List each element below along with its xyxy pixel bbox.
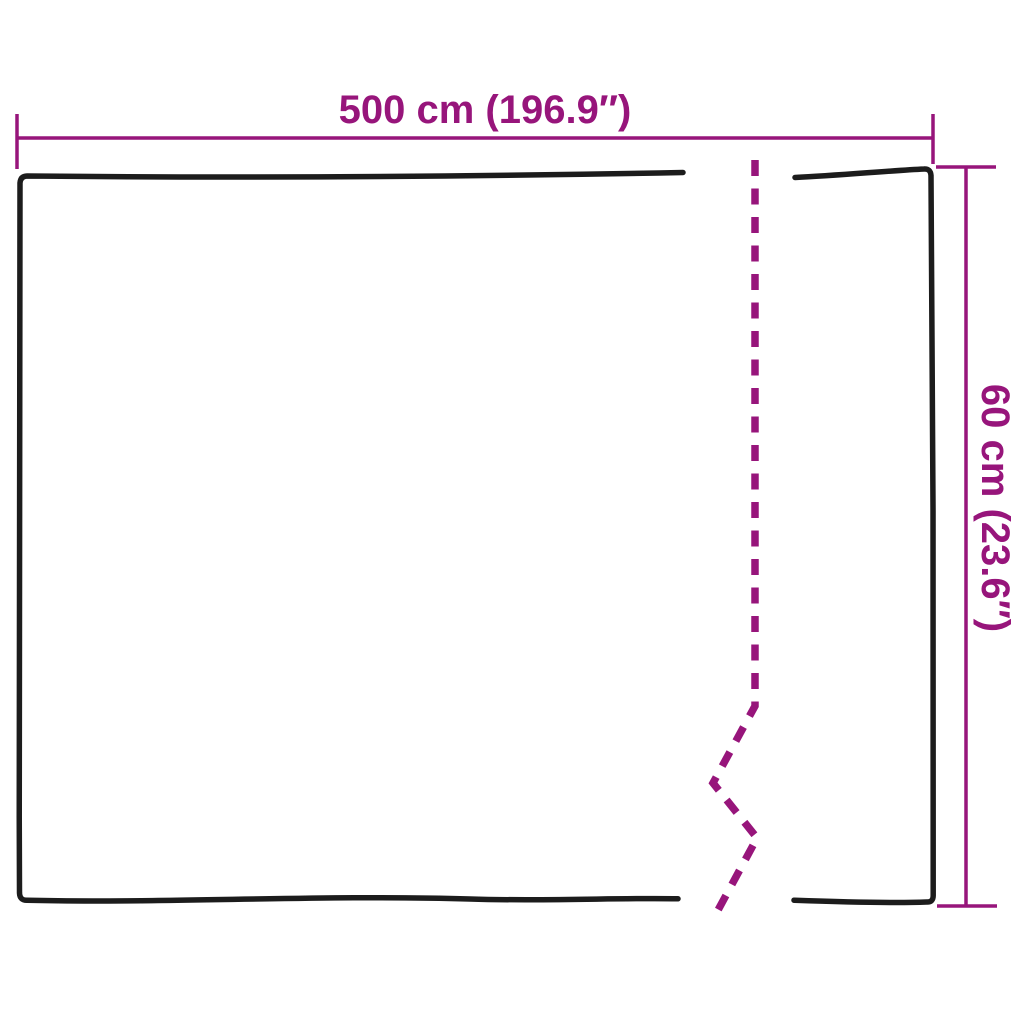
fold-dashed-line [713, 160, 757, 912]
width-dimension-label: 500 cm (196.9″) [20, 88, 950, 132]
product-outline-left [19, 173, 683, 902]
product-dimension-diagram: 500 cm (196.9″) 60 cm (23.6″) [0, 0, 1024, 1024]
height-dimension-label: 60 cm (23.6″) [973, 384, 1017, 632]
dimension-diagram-svg [0, 0, 1024, 1024]
product-outline-right [794, 169, 934, 903]
